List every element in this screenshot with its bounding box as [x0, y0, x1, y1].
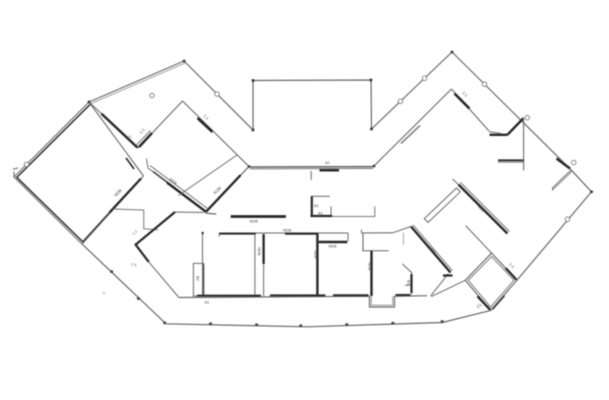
svg-text:NDB: NDB [329, 245, 337, 249]
svg-text:7.1: 7.1 [131, 262, 137, 267]
svg-text:B2: B2 [196, 276, 201, 282]
svg-text:1.1: 1.1 [202, 113, 210, 121]
svg-text:A1: A1 [318, 211, 324, 216]
svg-text:NDB: NDB [283, 228, 292, 233]
svg-text:C1: C1 [475, 302, 483, 310]
svg-text:1.1: 1.1 [138, 127, 146, 135]
svg-text:1.1: 1.1 [461, 90, 469, 98]
svg-text:B1: B1 [407, 280, 412, 286]
svg-text:B1: B1 [314, 203, 320, 208]
svg-text:A1: A1 [325, 160, 331, 165]
svg-text:1.1: 1.1 [508, 262, 516, 270]
svg-text:NDB: NDB [250, 219, 259, 224]
svg-text:NDB: NDB [257, 247, 262, 256]
svg-text:A1: A1 [205, 300, 211, 305]
svg-text:1.1: 1.1 [132, 229, 138, 235]
svg-text:T.T: T.T [125, 134, 133, 142]
svg-text:KOR: KOR [212, 185, 222, 195]
svg-text:NDB: NDB [314, 250, 319, 259]
svg-text:NDB: NDB [368, 262, 373, 271]
svg-text:NDB: NDB [113, 188, 123, 198]
